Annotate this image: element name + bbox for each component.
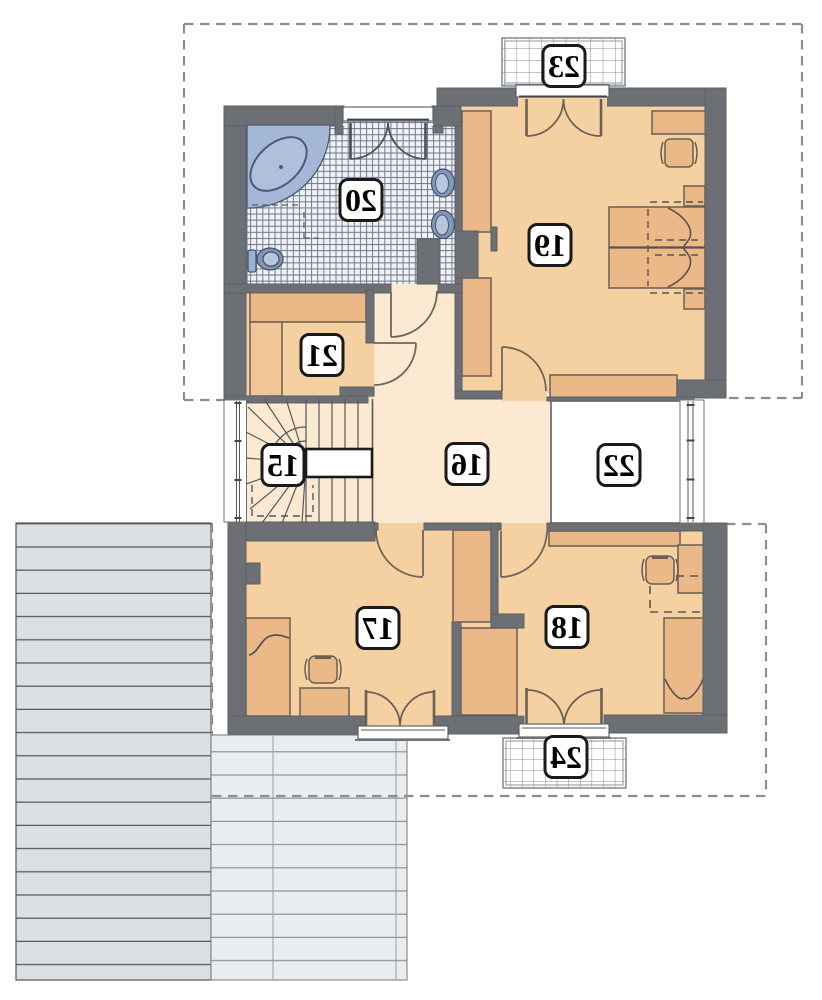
svg-text:22: 22 — [603, 447, 635, 483]
svg-text:20: 20 — [345, 182, 377, 218]
svg-text:19: 19 — [534, 227, 566, 263]
svg-text:23: 23 — [548, 48, 580, 84]
svg-text:15: 15 — [267, 447, 299, 483]
svg-text:18: 18 — [551, 609, 583, 645]
svg-text:16: 16 — [451, 446, 483, 482]
svg-text:21: 21 — [306, 337, 338, 373]
svg-text:17: 17 — [362, 610, 394, 646]
svg-text:24: 24 — [550, 739, 582, 775]
